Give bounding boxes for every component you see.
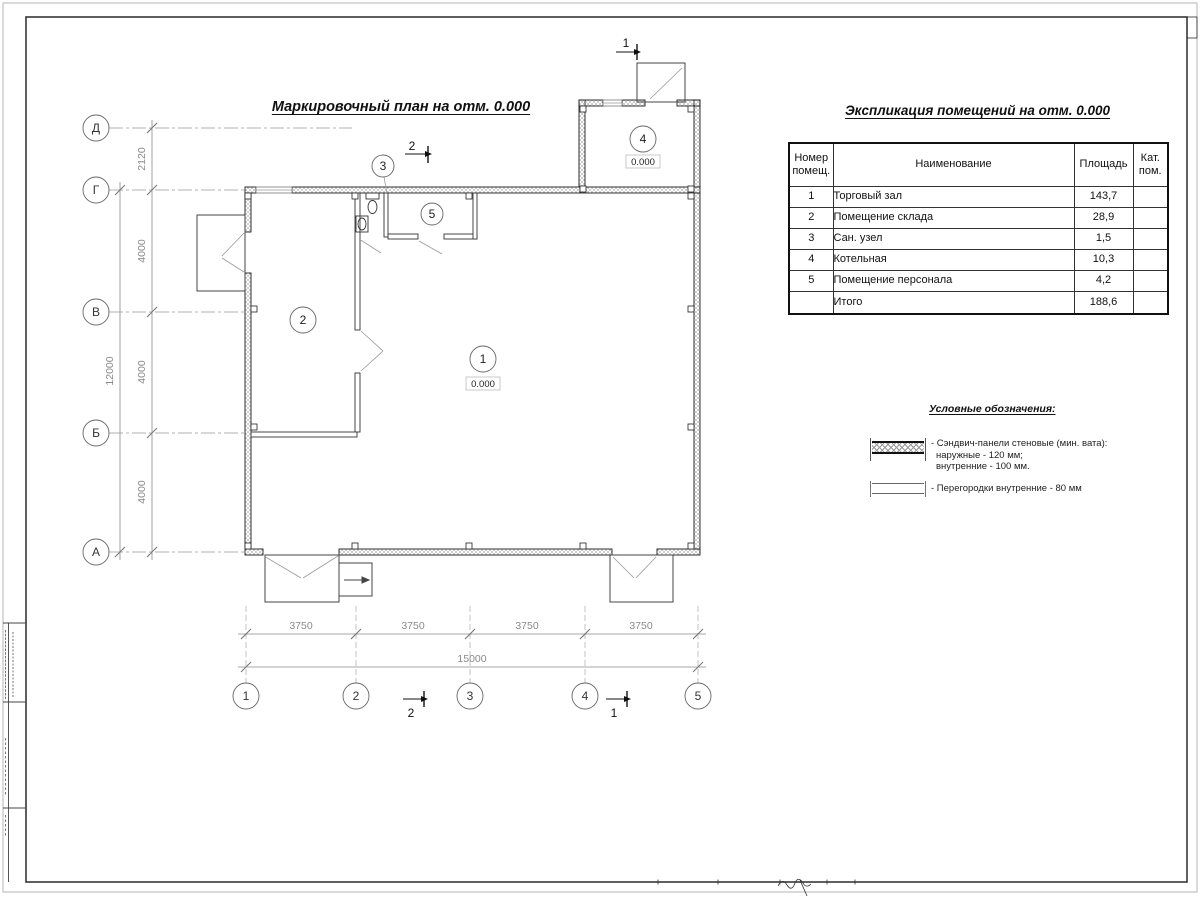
axis-col-label: 4	[582, 689, 589, 703]
legend-partition-line: - Перегородки внутренние - 80 мм	[931, 483, 1082, 494]
room-cat	[1133, 207, 1168, 228]
room-num: 1	[789, 186, 833, 207]
room-area: 4,2	[1074, 270, 1133, 291]
section-mark-1-bottom	[606, 691, 631, 707]
dims-left: 2120 4000 4000 4000 12000	[104, 120, 157, 560]
dim-bottom: 3750	[629, 620, 653, 632]
table-row: 5 Помещение персонала 4,2	[789, 270, 1168, 291]
partition-symbol	[872, 483, 924, 494]
axis-col-label: 5	[695, 689, 702, 703]
col-header-number: Номер помещ.	[789, 143, 833, 186]
dim-left: 2120	[136, 147, 148, 171]
table-row: 3 Сан. узел 1,5	[789, 228, 1168, 249]
dim-left-total: 12000	[104, 356, 116, 385]
table-title: Экспликация помещений на отм. 0.000	[788, 103, 1167, 118]
table-row: 1 Торговый зал 143,7	[789, 186, 1168, 207]
room-name: Сан. узел	[833, 228, 1074, 249]
dim-left: 4000	[136, 239, 148, 263]
section-marks	[403, 44, 641, 707]
room-cat	[1133, 186, 1168, 207]
table-total-row: Итого 188,6	[789, 291, 1168, 314]
section-mark-labels: 2 1 2 1	[408, 36, 630, 720]
drawing-sheet: Д Г В Б А 2120 4000 4000 4000 12000	[0, 0, 1200, 900]
porches	[197, 63, 685, 602]
room-cat	[1133, 228, 1168, 249]
frame-left-column	[3, 623, 26, 882]
axes-left: Д Г В Б А	[83, 115, 352, 565]
room-cat	[1133, 249, 1168, 270]
plan-title: Маркировочный план на отм. 0.000	[270, 99, 532, 115]
room-number: 1	[480, 352, 487, 366]
col-header-cat: Кат. пом.	[1133, 143, 1168, 186]
total-label: Итого	[833, 291, 1074, 314]
col-header-area: Площадь	[1074, 143, 1133, 186]
room-num: 2	[789, 207, 833, 228]
dim-left: 4000	[136, 480, 148, 504]
table-row: 4 Котельная 10,3	[789, 249, 1168, 270]
section-label: 1	[623, 36, 630, 50]
legend-sandwich-line2: наружные - 120 мм;	[936, 450, 1023, 461]
legend-title: Условные обозначения:	[929, 403, 1056, 415]
room-num: 3	[789, 228, 833, 249]
room-name: Помещение персонала	[833, 270, 1074, 291]
frame-left-text-marks	[6, 630, 14, 836]
room-name: Торговый зал	[833, 186, 1074, 207]
section-label: 2	[409, 139, 416, 153]
room-area: 10,3	[1074, 249, 1133, 270]
table-row: 2 Помещение склада 28,9	[789, 207, 1168, 228]
axis-col-label: 3	[467, 689, 474, 703]
dim-bottom: 3750	[289, 620, 313, 632]
room-name: Помещение склада	[833, 207, 1074, 228]
axis-col-label: 2	[353, 689, 360, 703]
axis-row-label: Б	[92, 426, 100, 440]
dim-bottom: 3750	[401, 620, 425, 632]
dim-bottom-total: 15000	[457, 653, 486, 665]
room-num: 4	[789, 249, 833, 270]
axis-row-label: Г	[93, 183, 100, 197]
section-label: 2	[408, 706, 415, 720]
room-area: 28,9	[1074, 207, 1133, 228]
room-explication-table: Номер помещ. Наименование Площадь Кат. п…	[788, 142, 1169, 315]
ramp-arrow-icon	[344, 577, 369, 583]
sandwich-panel-symbol	[872, 441, 924, 454]
room-bubbles: 1 2 3 4 5 0.000 0.000	[290, 126, 660, 390]
level-mark: 0.000	[471, 379, 495, 390]
dim-left: 4000	[136, 360, 148, 384]
legend-sandwich-line1: - Сэндвич-панели стеновые (мин. вата):	[931, 438, 1107, 449]
toilet-icon	[366, 193, 379, 214]
total-area: 188,6	[1074, 291, 1133, 314]
dims-bottom: 3750 3750 3750 3750 15000	[238, 620, 706, 672]
axis-row-label: А	[92, 545, 100, 559]
room-number: 4	[640, 132, 647, 146]
level-mark: 0.000	[631, 157, 655, 168]
legend-sandwich-line3: внутренние - 100 мм.	[936, 461, 1030, 472]
axis-row-label: Д	[92, 121, 100, 135]
room-area: 143,7	[1074, 186, 1133, 207]
room-number: 2	[300, 313, 307, 327]
room-cat	[1133, 270, 1168, 291]
room-number: 3	[380, 159, 387, 173]
section-mark-2-bottom	[403, 691, 428, 707]
room-number: 5	[429, 207, 436, 221]
axis-col-label: 1	[243, 689, 250, 703]
section-label: 1	[611, 706, 618, 720]
room-area: 1,5	[1074, 228, 1133, 249]
axis-row-label: В	[92, 305, 100, 319]
room-name: Котельная	[833, 249, 1074, 270]
col-header-name: Наименование	[833, 143, 1074, 186]
room-num: 5	[789, 270, 833, 291]
dim-bottom: 3750	[515, 620, 539, 632]
